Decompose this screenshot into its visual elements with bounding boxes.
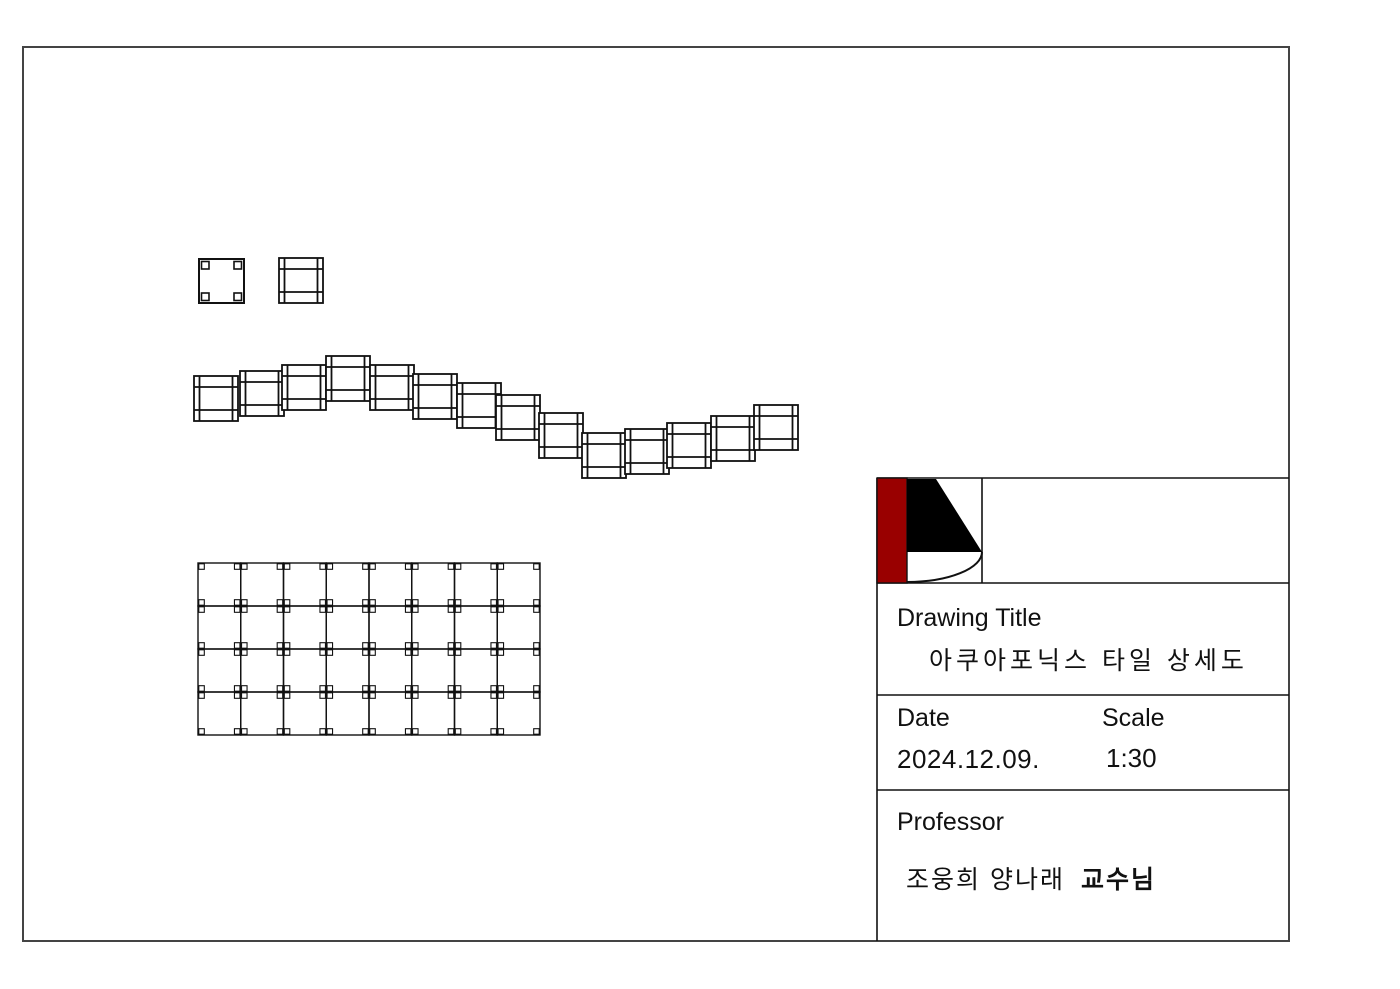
scale-label: Scale	[1102, 705, 1165, 733]
drawing-title-value: 아쿠아포닉스 타일 상세도	[929, 648, 1248, 676]
tile-grid	[198, 563, 540, 735]
drawing-title-label: Drawing Title	[897, 605, 1042, 633]
sheet-border-rect	[23, 47, 1289, 941]
date-value: 2024.12.09.	[897, 745, 1040, 774]
section-tile-detail	[279, 258, 323, 303]
drawing-sheet: Drawing Title 아쿠아포닉스 타일 상세도 Date 2024.12…	[0, 0, 1400, 989]
date-label: Date	[897, 705, 950, 733]
scale-value: 1:30	[1106, 744, 1157, 773]
professor-value: 조웅희 양나래교수님	[906, 867, 1156, 895]
professor-names: 조웅희 양나래	[906, 866, 1065, 894]
professor-label: Professor	[897, 809, 1004, 837]
professor-honorific: 교수님	[1081, 866, 1156, 894]
tile-wave	[194, 356, 798, 478]
company-logo	[877, 478, 982, 583]
cad-linework	[0, 0, 1400, 989]
plan-tile-detail	[199, 259, 244, 303]
